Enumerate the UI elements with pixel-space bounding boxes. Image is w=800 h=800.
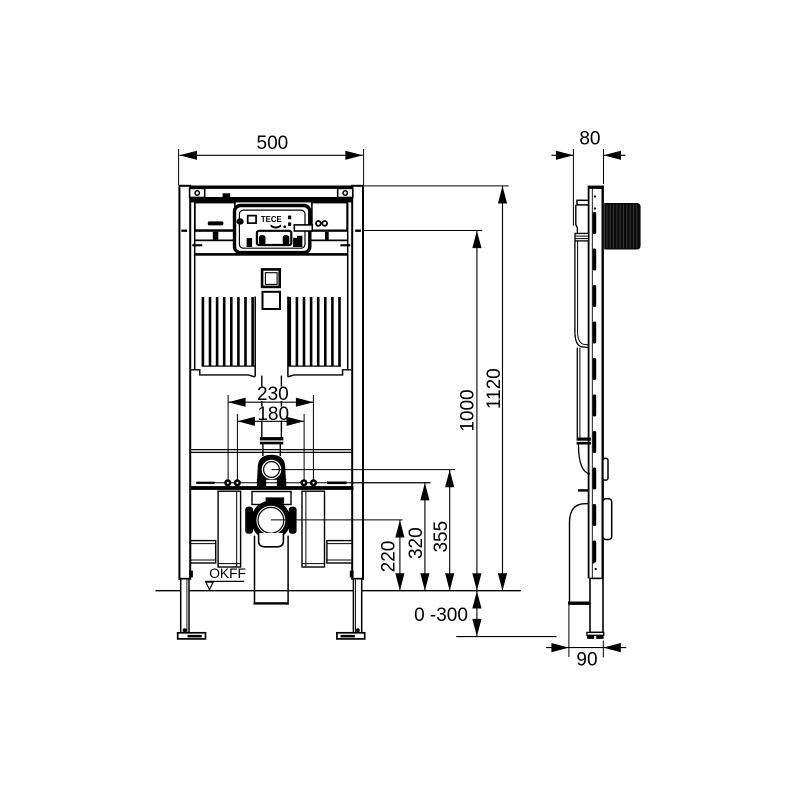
svg-text:1120: 1120 <box>484 368 505 409</box>
svg-text:220: 220 <box>379 541 400 573</box>
svg-text:320: 320 <box>406 527 427 559</box>
svg-text:0 -300: 0 -300 <box>414 605 468 626</box>
svg-text:90: 90 <box>576 649 597 670</box>
svg-text:1000: 1000 <box>458 389 479 431</box>
svg-text:500: 500 <box>257 133 289 154</box>
svg-text:355: 355 <box>431 521 452 553</box>
svg-text:180: 180 <box>257 404 289 425</box>
svg-text:TECE: TECE <box>261 215 282 224</box>
svg-text:OKFF: OKFF <box>209 566 246 581</box>
svg-text:80: 80 <box>579 129 600 150</box>
